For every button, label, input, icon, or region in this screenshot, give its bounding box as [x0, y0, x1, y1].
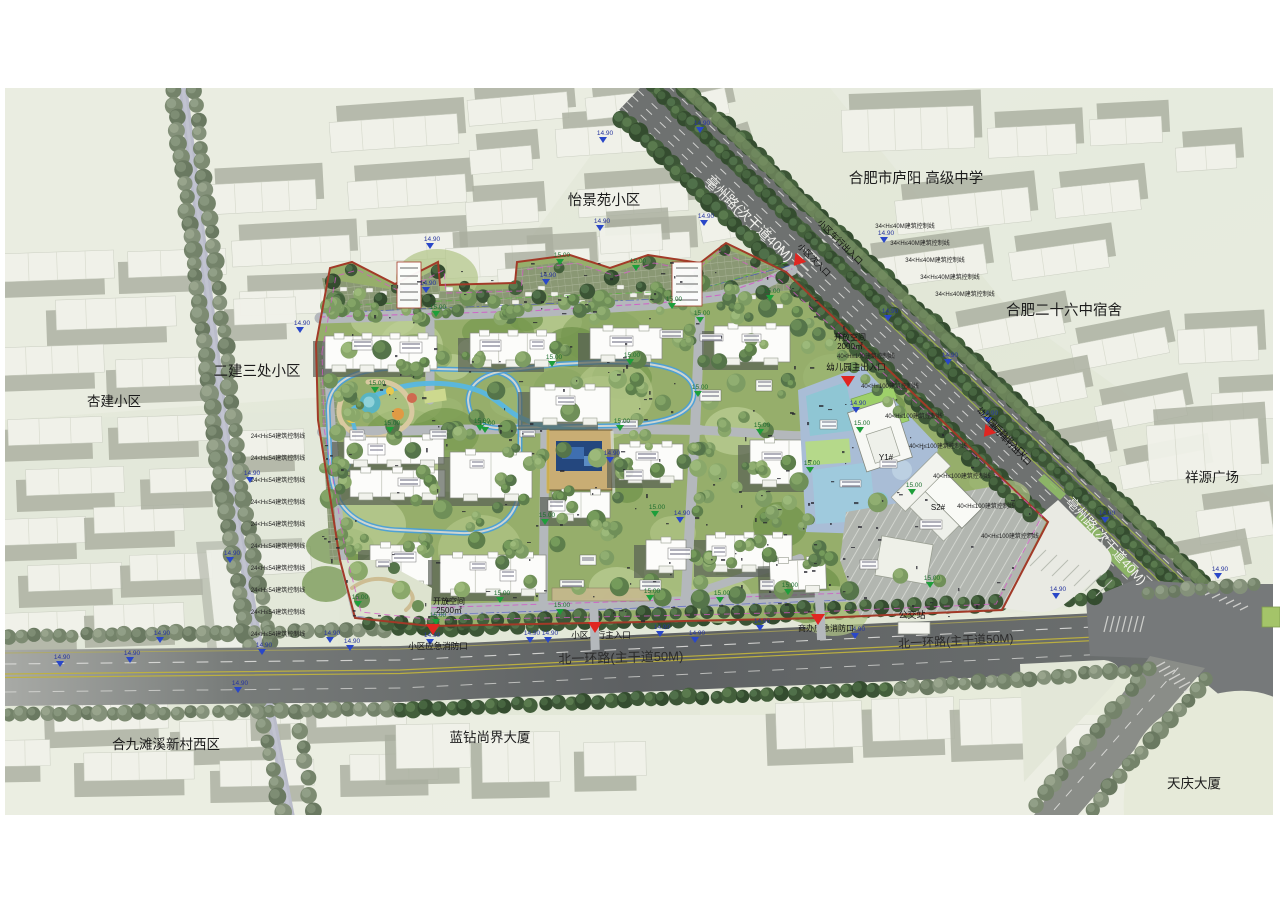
svg-text:15.00: 15.00 [352, 594, 369, 601]
svg-text:15.00: 15.00 [649, 504, 666, 511]
svg-text:24<H≤54建筑控制线: 24<H≤54建筑控制线 [251, 432, 305, 440]
svg-text:14.90: 14.90 [420, 280, 437, 287]
svg-text:40<H≤100建筑控制线: 40<H≤100建筑控制线 [933, 472, 991, 480]
svg-text:S2#: S2# [931, 503, 946, 512]
svg-text:40<H≤100建筑控制线: 40<H≤100建筑控制线 [981, 532, 1039, 540]
svg-text:24<H≤54建筑控制线: 24<H≤54建筑控制线 [251, 498, 305, 506]
svg-text:34<H≤40M建筑控制线: 34<H≤40M建筑控制线 [890, 239, 949, 247]
svg-text:14.90: 14.90 [244, 470, 261, 477]
svg-text:2500㎡: 2500㎡ [436, 606, 462, 615]
svg-text:14.90: 14.90 [154, 630, 171, 637]
svg-text:34<H≤40M建筑控制线: 34<H≤40M建筑控制线 [935, 290, 994, 298]
svg-text:14.90: 14.90 [654, 624, 671, 631]
svg-text:合肥二十六中宿舍: 合肥二十六中宿舍 [1006, 302, 1122, 319]
svg-text:14.90: 14.90 [878, 230, 895, 237]
svg-text:14.90: 14.90 [674, 510, 691, 517]
svg-text:15.00: 15.00 [692, 384, 709, 391]
svg-text:24<H≤54建筑控制线: 24<H≤54建筑控制线 [251, 454, 305, 462]
svg-text:14.90: 14.90 [542, 630, 559, 637]
svg-text:15.00: 15.00 [666, 296, 683, 303]
svg-text:24<H≤54建筑控制线: 24<H≤54建筑控制线 [251, 608, 305, 616]
svg-text:小区人行主入口: 小区人行主入口 [571, 630, 631, 640]
svg-text:15.00: 15.00 [630, 258, 647, 265]
svg-text:14.90: 14.90 [882, 308, 899, 315]
svg-text:14.90: 14.90 [256, 642, 273, 649]
svg-text:40<H≤100建筑控制线: 40<H≤100建筑控制线 [885, 412, 943, 420]
svg-text:15.00: 15.00 [554, 602, 571, 609]
svg-text:15.00: 15.00 [782, 582, 799, 589]
svg-text:14.90: 14.90 [424, 236, 441, 243]
svg-text:14.90: 14.90 [604, 450, 621, 457]
svg-text:14.90: 14.90 [597, 130, 614, 137]
svg-text:15.00: 15.00 [614, 418, 631, 425]
svg-text:二建三处小区: 二建三处小区 [214, 363, 301, 380]
svg-text:15.00: 15.00 [539, 512, 556, 519]
svg-text:15.00: 15.00 [479, 420, 496, 427]
svg-text:杏建小区: 杏建小区 [87, 394, 141, 409]
svg-text:14.90: 14.90 [689, 630, 706, 637]
svg-text:14.90: 14.90 [754, 618, 771, 625]
svg-text:小区应急消防口: 小区应急消防口 [408, 641, 468, 651]
svg-text:15.00: 15.00 [494, 590, 511, 597]
svg-text:15.00: 15.00 [546, 354, 563, 361]
svg-text:15.00: 15.00 [624, 352, 641, 359]
svg-text:24<H≤54建筑控制线: 24<H≤54建筑控制线 [251, 630, 305, 638]
svg-text:开放空间: 开放空间 [834, 332, 866, 342]
svg-text:天庆大厦: 天庆大厦 [1167, 776, 1221, 791]
svg-text:34<H≤40M建筑控制线: 34<H≤40M建筑控制线 [875, 222, 934, 230]
svg-text:14.90: 14.90 [694, 120, 711, 127]
svg-text:商办应急消防口: 商办应急消防口 [798, 623, 854, 633]
svg-text:40<H≤100建筑控制线: 40<H≤100建筑控制线 [957, 502, 1015, 510]
svg-text:蓝钻尚界大厦: 蓝钻尚界大厦 [450, 730, 531, 745]
svg-text:14.90: 14.90 [324, 630, 341, 637]
svg-text:40<H≤100建筑控制线: 40<H≤100建筑控制线 [909, 442, 967, 450]
svg-text:14.90: 14.90 [594, 218, 611, 225]
svg-text:14.90: 14.90 [524, 630, 541, 637]
svg-text:14.90: 14.90 [1212, 566, 1229, 573]
svg-text:合肥市庐阳 高级中学: 合肥市庐阳 高级中学 [849, 170, 984, 187]
svg-text:34<H≤40M建筑控制线: 34<H≤40M建筑控制线 [905, 256, 964, 264]
svg-text:14.90: 14.90 [294, 320, 311, 327]
svg-text:15.00: 15.00 [854, 420, 871, 427]
svg-text:24<H≤54建筑控制线: 24<H≤54建筑控制线 [251, 476, 305, 484]
svg-text:2000㎡: 2000㎡ [837, 342, 863, 351]
svg-text:开放空间: 开放空间 [433, 596, 465, 606]
svg-text:怡景苑小区: 怡景苑小区 [568, 192, 641, 209]
svg-text:合九滩溪新村西区: 合九滩溪新村西区 [112, 737, 220, 752]
svg-text:15.00: 15.00 [430, 304, 447, 311]
svg-text:15.00: 15.00 [906, 482, 923, 489]
svg-text:24<H≤54建筑控制线: 24<H≤54建筑控制线 [251, 542, 305, 550]
svg-text:14.90: 14.90 [1050, 586, 1067, 593]
svg-text:40<H≤100建筑控制线: 40<H≤100建筑控制线 [861, 382, 919, 390]
svg-text:15.00: 15.00 [694, 310, 711, 317]
svg-text:公交站: 公交站 [898, 609, 925, 620]
svg-text:14.90: 14.90 [224, 550, 241, 557]
svg-text:24<H≤54建筑控制线: 24<H≤54建筑控制线 [251, 586, 305, 594]
svg-text:15.00: 15.00 [384, 420, 401, 427]
svg-text:15.00: 15.00 [924, 575, 941, 582]
svg-text:14.90: 14.90 [942, 352, 959, 359]
svg-text:40<H≤100建筑控制线: 40<H≤100建筑控制线 [837, 352, 895, 360]
svg-text:24<H≤54建筑控制线: 24<H≤54建筑控制线 [251, 520, 305, 528]
svg-text:14.90: 14.90 [540, 272, 557, 279]
svg-text:15.00: 15.00 [714, 590, 731, 597]
svg-text:15.00: 15.00 [369, 380, 386, 387]
svg-text:15.00: 15.00 [644, 588, 661, 595]
svg-text:14.90: 14.90 [850, 400, 867, 407]
svg-text:15.00: 15.00 [754, 422, 771, 429]
svg-text:幼儿园主出入口: 幼儿园主出入口 [826, 362, 886, 372]
svg-text:Y1#: Y1# [879, 453, 894, 462]
svg-text:14.90: 14.90 [1099, 510, 1116, 517]
svg-text:24<H≤54建筑控制线: 24<H≤54建筑控制线 [251, 564, 305, 572]
svg-text:15.00: 15.00 [764, 288, 781, 295]
svg-text:34<H≤40M建筑控制线: 34<H≤40M建筑控制线 [920, 273, 979, 281]
svg-text:14.90: 14.90 [232, 680, 249, 687]
svg-text:14.90: 14.90 [344, 638, 361, 645]
svg-text:14.90: 14.90 [54, 654, 71, 661]
svg-text:15.00: 15.00 [804, 460, 821, 467]
svg-text:15.00: 15.00 [554, 252, 571, 259]
svg-text:14.90: 14.90 [124, 650, 141, 657]
svg-text:祥源广场: 祥源广场 [1185, 470, 1239, 485]
svg-text:14.90: 14.90 [698, 213, 715, 220]
